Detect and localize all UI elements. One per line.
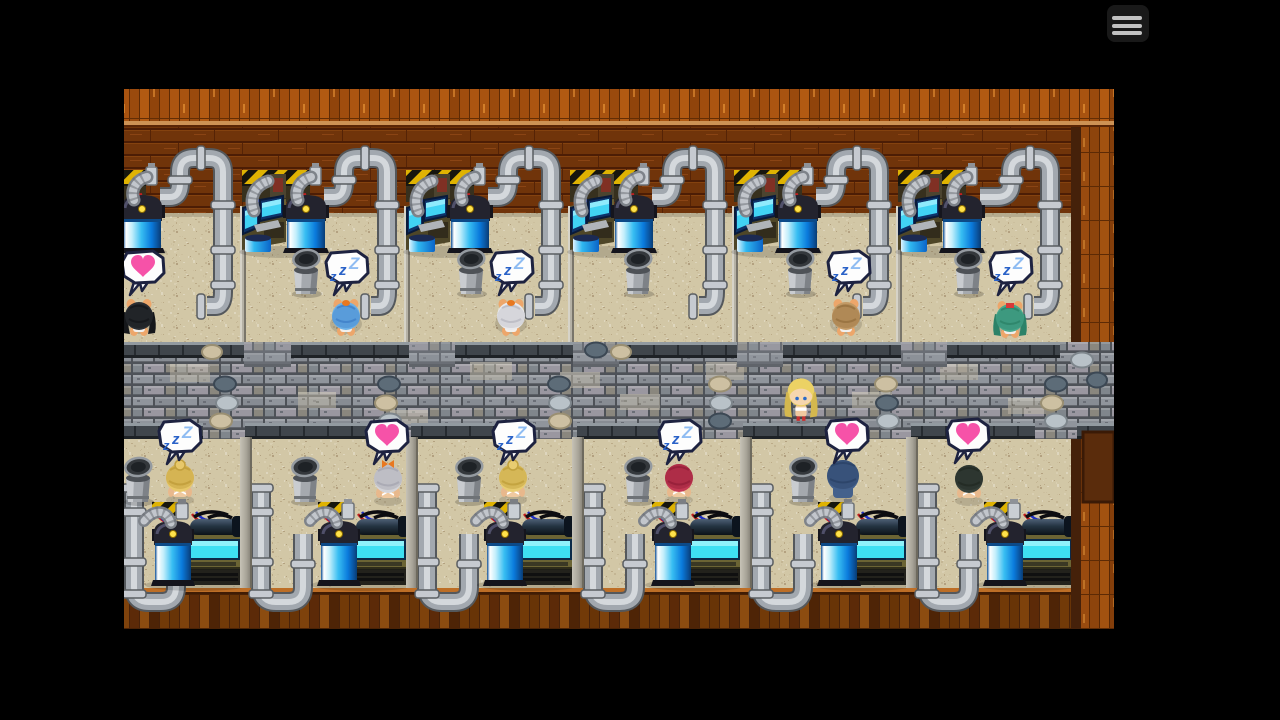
svg-text:z: z	[1002, 262, 1011, 279]
svg-text:z: z	[494, 269, 502, 284]
svg-text:Z: Z	[515, 423, 527, 442]
svg-text:z: z	[671, 431, 680, 448]
svg-text:Z: Z	[513, 254, 525, 273]
svg-text:z: z	[329, 269, 337, 284]
svg-text:z: z	[338, 262, 347, 279]
svg-text:Z: Z	[681, 423, 693, 442]
svg-text:Z: Z	[1012, 254, 1024, 273]
svg-text:z: z	[496, 438, 504, 453]
svg-text:z: z	[505, 431, 514, 448]
svg-text:z: z	[840, 262, 849, 279]
svg-text:Z: Z	[348, 254, 360, 273]
svg-text:z: z	[171, 431, 180, 448]
svg-text:z: z	[162, 438, 170, 453]
svg-text:z: z	[662, 438, 670, 453]
svg-text:Z: Z	[181, 423, 193, 442]
svg-text:Z: Z	[850, 254, 862, 273]
svg-text:z: z	[831, 269, 839, 284]
svg-text:z: z	[503, 262, 512, 279]
svg-text:z: z	[993, 269, 1001, 284]
